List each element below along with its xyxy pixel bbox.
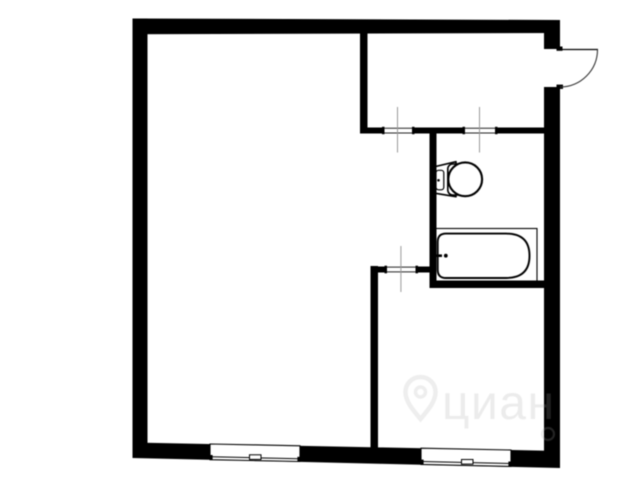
svg-text:циан: циан: [442, 377, 556, 430]
